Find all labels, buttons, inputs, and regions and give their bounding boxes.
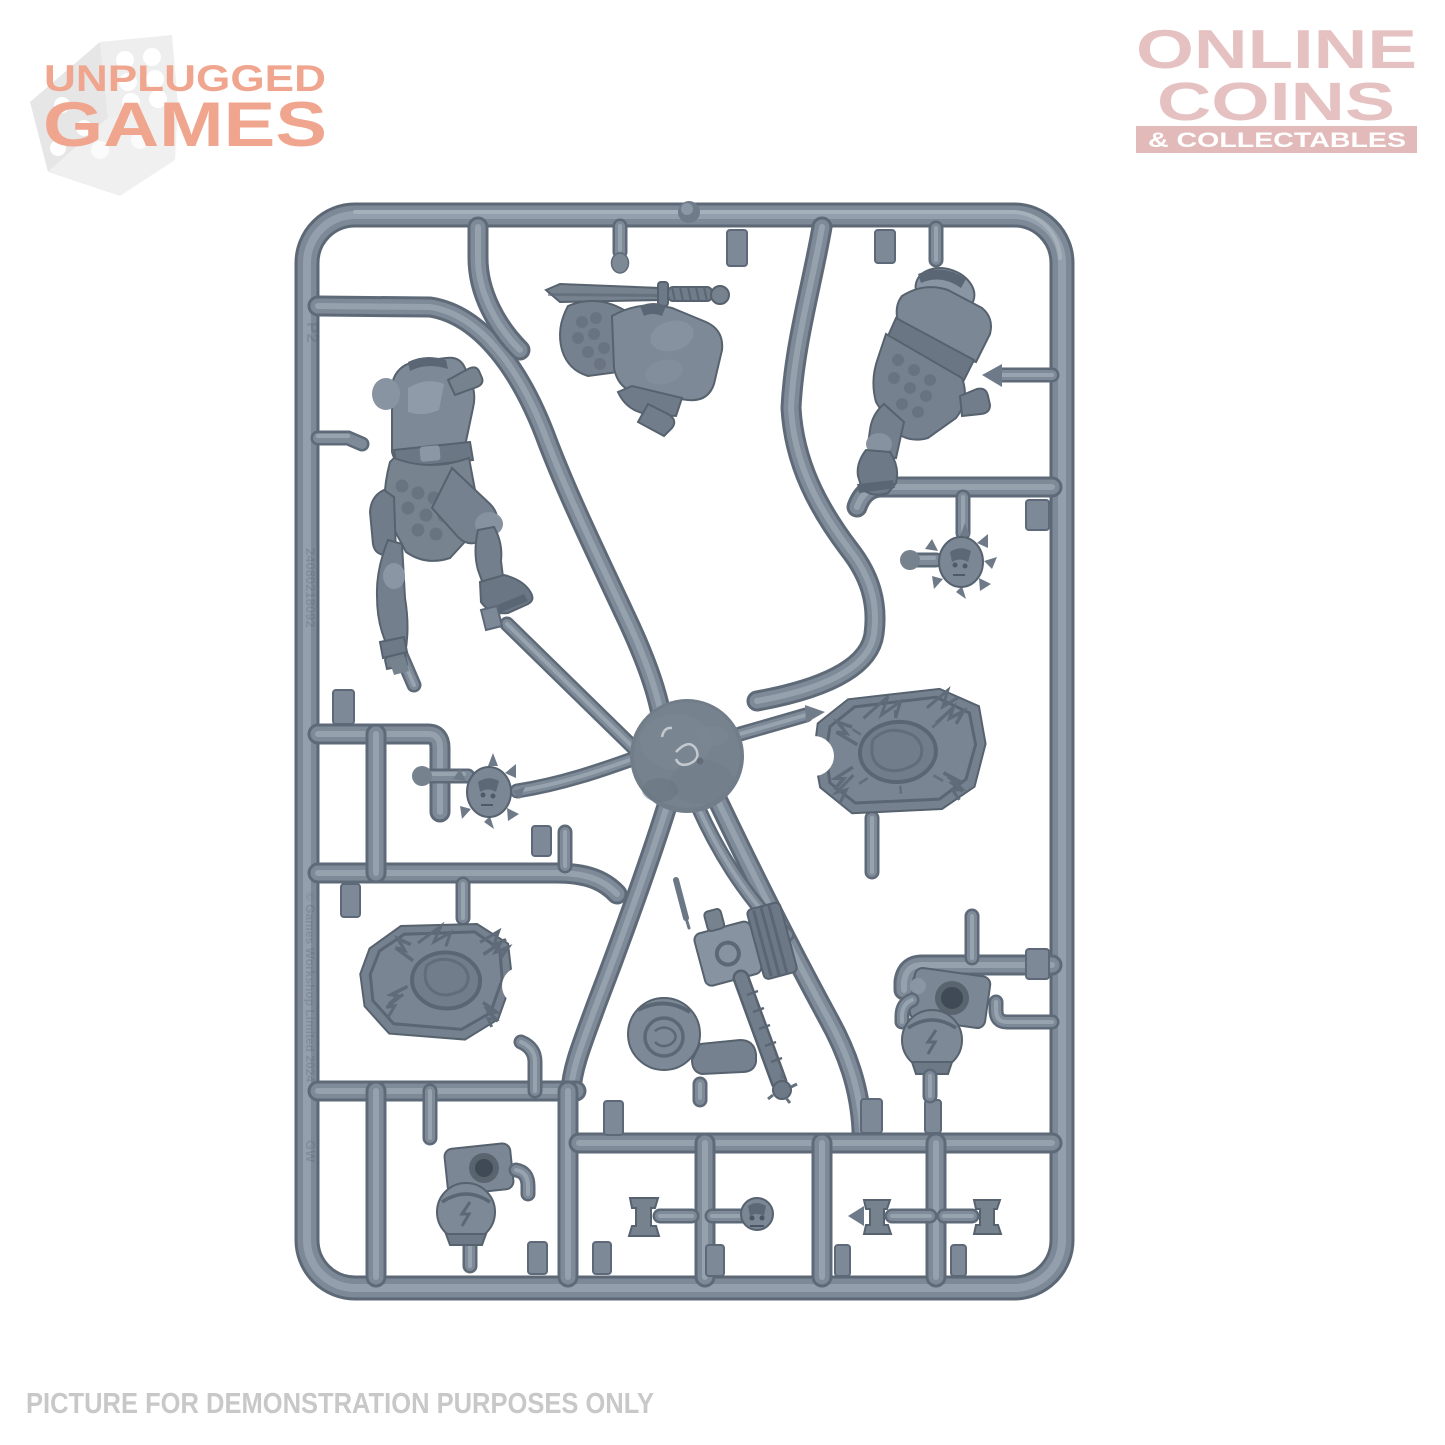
svg-text:COINS: COINS <box>1157 72 1395 132</box>
svg-text:PICTURE FOR DEMONSTRATION PURP: PICTURE FOR DEMONSTRATION PURPOSES ONLY <box>26 1388 654 1420</box>
svg-text:ONLINE: ONLINE <box>1136 18 1417 80</box>
svg-text:& COLLECTABLES: & COLLECTABLES <box>1148 129 1406 152</box>
svg-text:GAMES: GAMES <box>43 90 327 160</box>
